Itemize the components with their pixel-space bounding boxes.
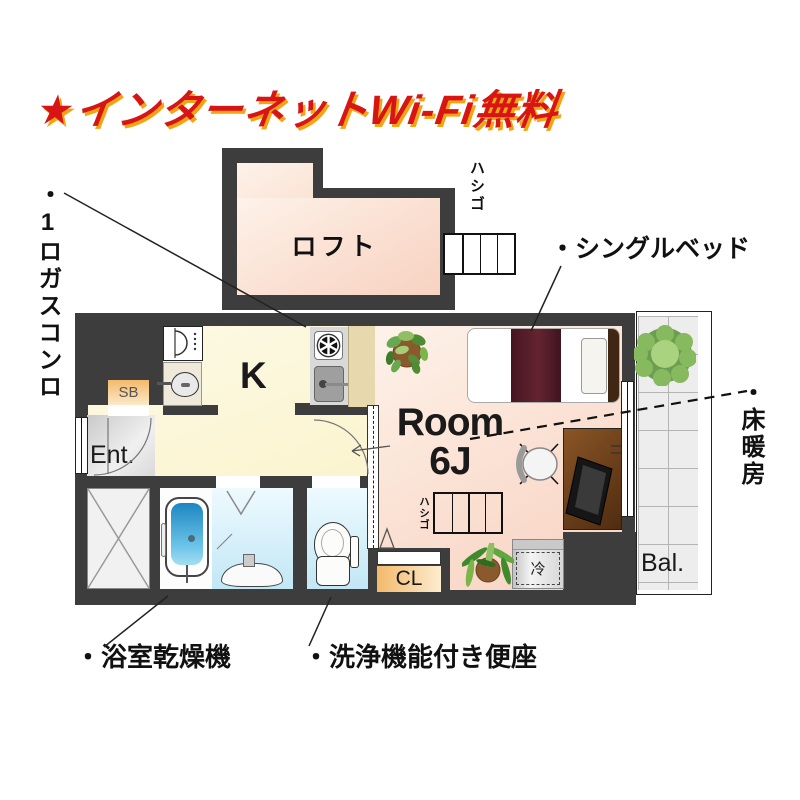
laptop-icon xyxy=(564,429,621,529)
bathroom xyxy=(160,488,293,589)
front-door-leaf xyxy=(81,418,83,473)
closet: CL xyxy=(377,566,441,592)
callout-bathroom-dryer: ・浴室乾燥機 xyxy=(75,637,231,674)
chair xyxy=(512,438,562,490)
toilet-room xyxy=(307,488,368,589)
bathtub-pipe xyxy=(186,565,188,583)
room-label-bottom: 6J xyxy=(392,442,508,481)
loft-label: ロフト xyxy=(250,227,420,263)
kitchen-sink xyxy=(314,366,344,402)
vanity-unit xyxy=(163,362,202,406)
balcony-label: Bal. xyxy=(641,549,684,578)
ladder-rung xyxy=(468,494,470,532)
closet-shelf xyxy=(377,551,441,565)
single-bed xyxy=(467,328,620,403)
toilet-bowl-inner xyxy=(321,529,344,557)
room-label-top: Room xyxy=(392,403,508,442)
refrigerator-label: 冷 xyxy=(516,552,560,585)
callout-washlet: ・洗浄機能付き便座 xyxy=(303,637,537,674)
shoe-box-gap xyxy=(108,405,149,416)
desk xyxy=(563,428,622,530)
potted-plant-top xyxy=(382,330,432,375)
refrigerator: 冷 xyxy=(512,539,564,589)
bathtub-drain xyxy=(188,535,195,542)
potted-plant-bottom xyxy=(462,543,514,589)
chair-icon xyxy=(512,438,562,490)
balcony-window xyxy=(621,381,634,517)
entrance-label: Ent. xyxy=(90,441,134,470)
callout-floor-heating: ・床暖房 xyxy=(733,380,768,488)
balcony-bush xyxy=(634,324,696,386)
toilet-washlet-arm xyxy=(350,536,359,568)
shoe-box-label: SB xyxy=(118,384,138,401)
bush-icon xyxy=(634,324,696,386)
vanity-faucet xyxy=(157,382,171,385)
window-sash xyxy=(627,382,629,516)
plant-icon xyxy=(462,543,514,589)
ladder-rung xyxy=(497,235,499,273)
callout-single-bed: ・シングルベッド xyxy=(550,229,750,265)
bed-pillow xyxy=(581,338,607,394)
loft-ladder xyxy=(443,233,516,275)
toilet-tank xyxy=(316,556,350,586)
front-door-opening xyxy=(75,417,88,474)
kitchen-label: K xyxy=(240,355,267,397)
ladder-rung xyxy=(452,494,454,532)
floorplan-canvas: ★インターネットWi-Fi無料 ロフト ハシゴ SB Ent. xyxy=(0,0,800,800)
shoe-box: SB xyxy=(108,380,149,405)
kitchen-unit xyxy=(310,327,348,405)
vanity-drain xyxy=(181,383,190,387)
toilet-door-opening xyxy=(312,476,360,488)
bed-headboard xyxy=(608,329,619,402)
ladder-rung xyxy=(485,494,487,532)
refrigerator-top xyxy=(513,540,563,550)
callout-gas-stove: ・1ロガスコンロ xyxy=(30,182,65,401)
page-title: ★インターネットWi-Fi無料 xyxy=(34,76,563,136)
sliding-door-track xyxy=(373,406,374,548)
vanity-basin xyxy=(171,372,199,397)
room-label: Room 6J xyxy=(392,403,508,481)
bed-blanket xyxy=(511,329,561,402)
bath-faucet xyxy=(243,554,255,567)
gas-burner xyxy=(314,331,343,360)
closet-label: CL xyxy=(396,567,423,591)
bathtub-water xyxy=(171,503,203,565)
ladder-rung xyxy=(462,235,464,273)
room-ladder xyxy=(433,492,503,534)
kitchen-counter xyxy=(348,326,375,407)
washing-machine xyxy=(163,326,203,361)
ladder-rung xyxy=(480,235,482,273)
room-ladder-label: ハシゴ xyxy=(417,496,432,531)
loft-ladder-label: ハシゴ xyxy=(466,160,487,214)
pipe-shaft xyxy=(87,488,150,589)
shaft-cross-icon xyxy=(88,489,149,588)
plant-icon xyxy=(382,330,432,375)
bathroom-door-opening xyxy=(216,476,260,488)
gas-burner-icon xyxy=(315,332,342,359)
sliding-door xyxy=(367,405,379,549)
washing-machine-icon xyxy=(164,327,201,359)
bathtub xyxy=(165,497,209,577)
grab-bar xyxy=(161,523,166,557)
wall-block-bottomright xyxy=(563,532,636,605)
wall-stub-kitchen-left xyxy=(163,405,218,415)
